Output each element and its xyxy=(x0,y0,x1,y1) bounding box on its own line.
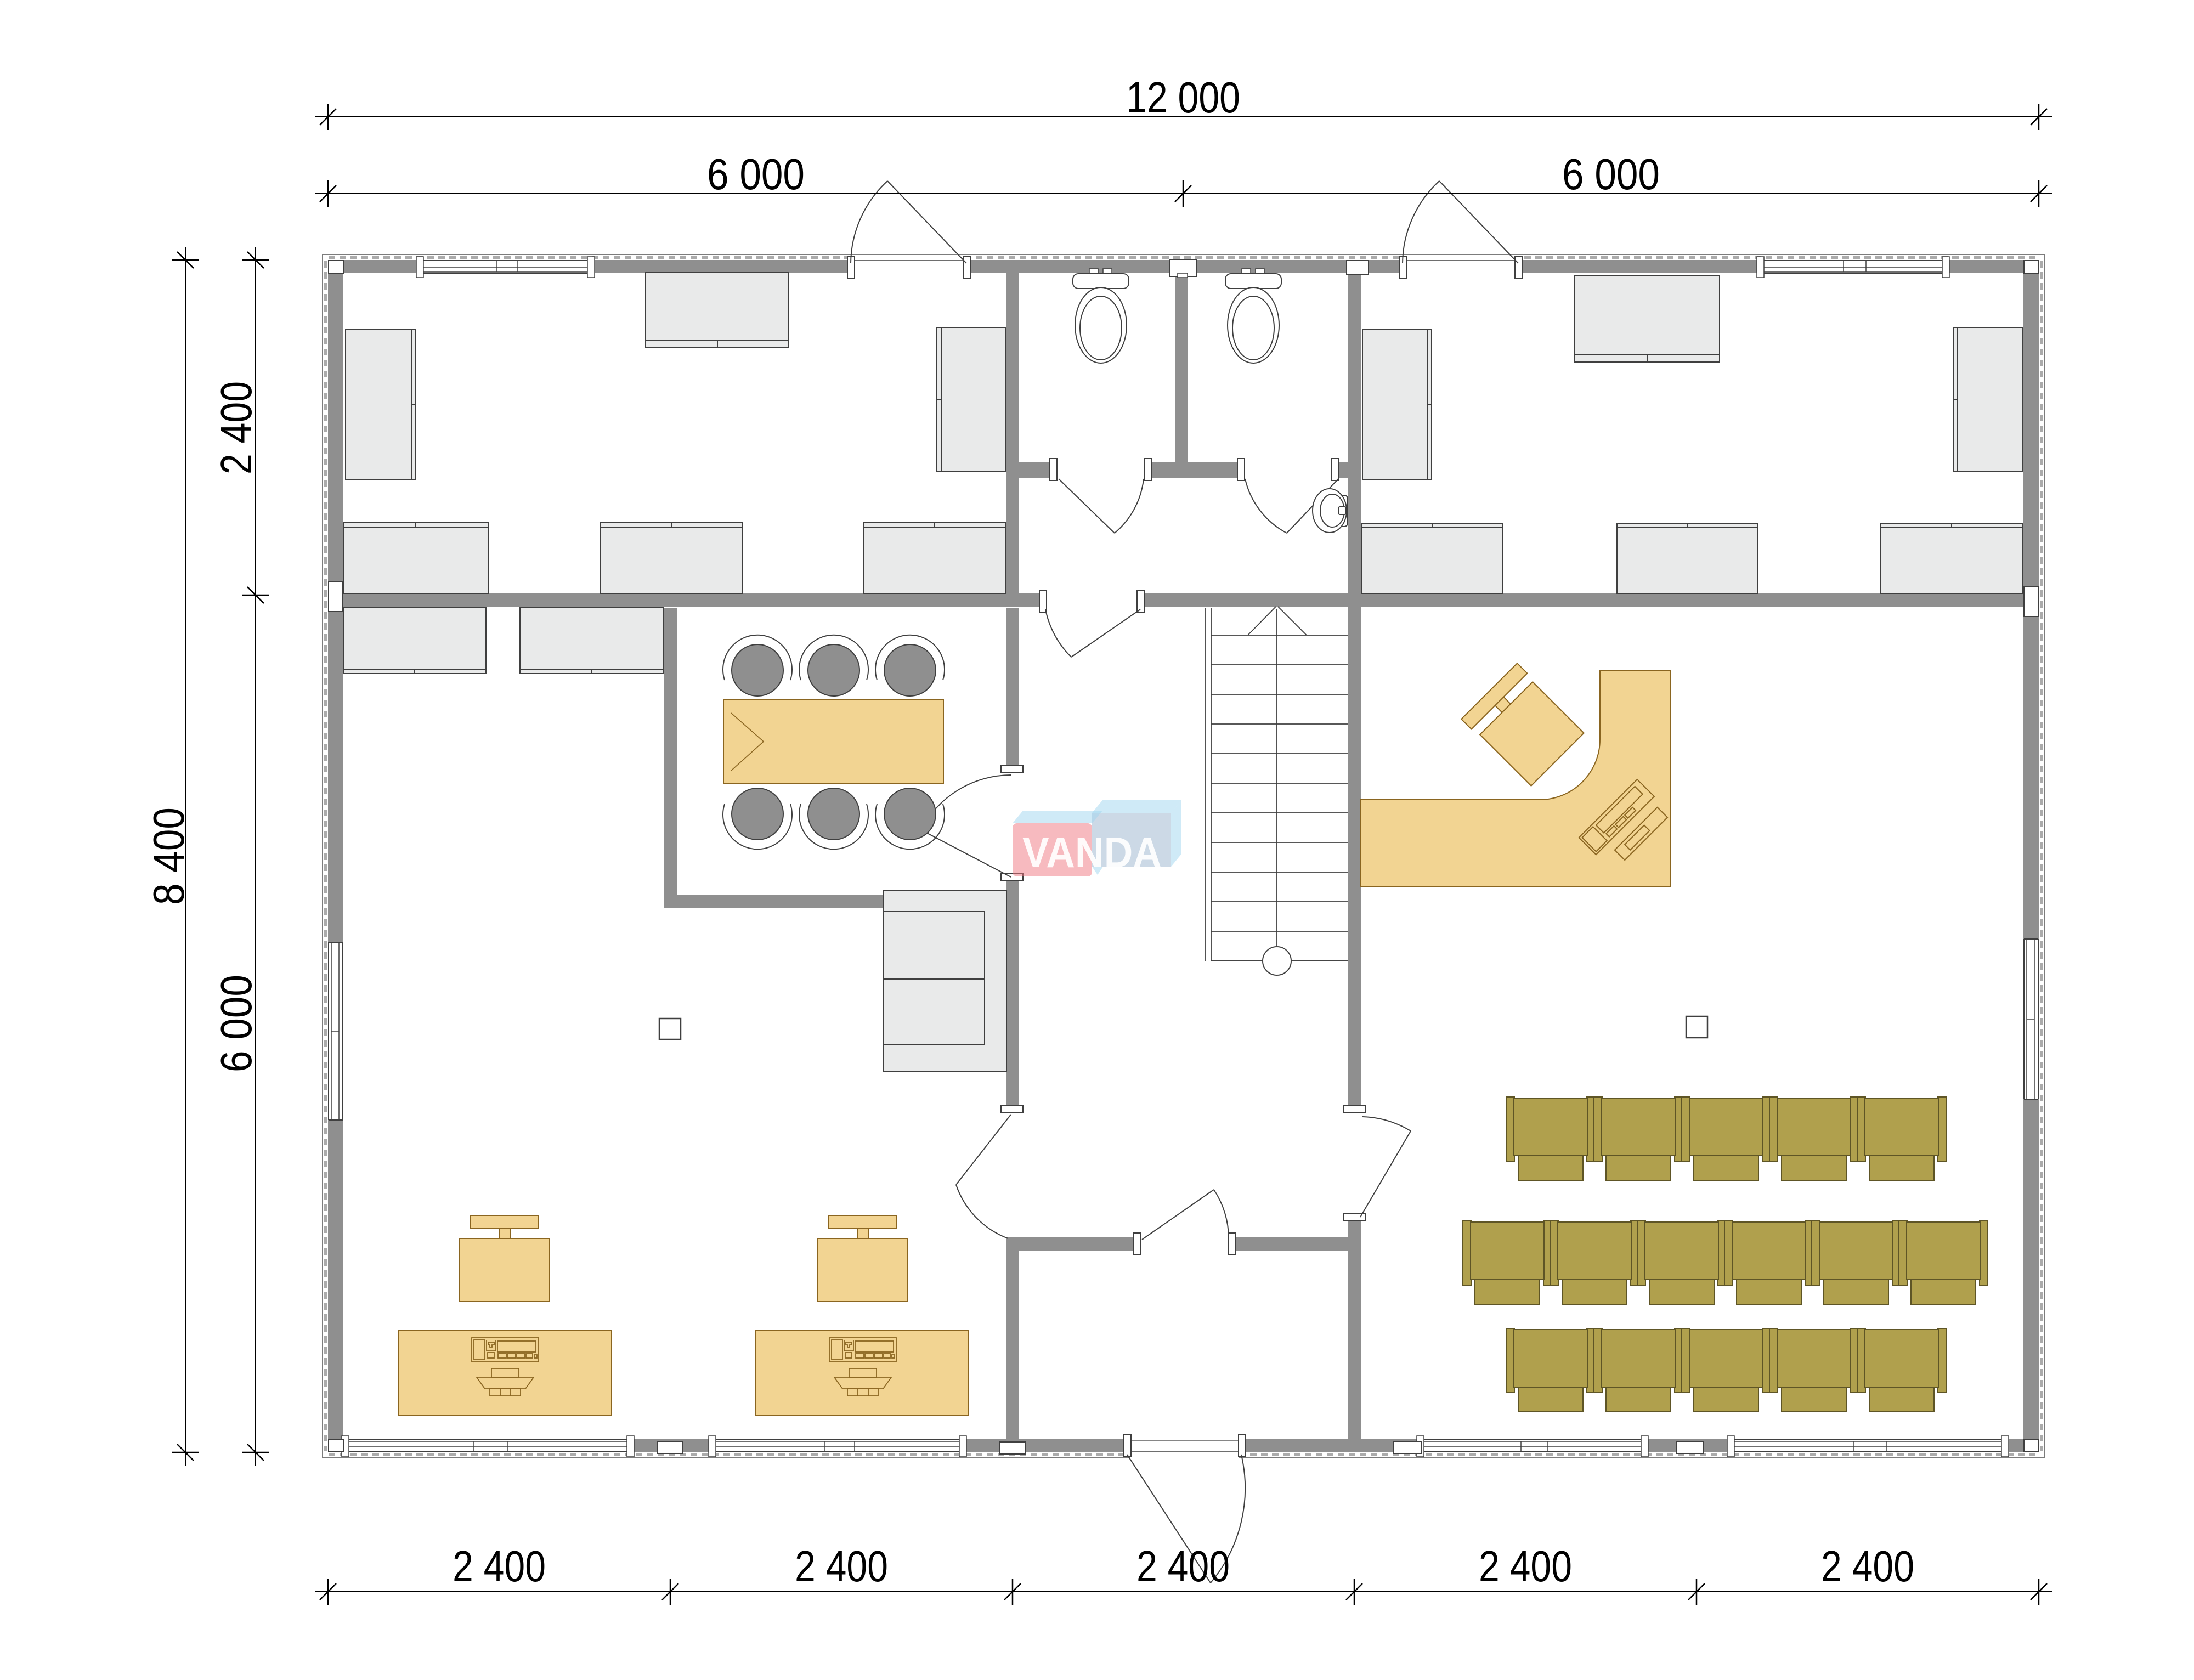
svg-text:6 000: 6 000 xyxy=(1562,150,1660,199)
svg-text:8 400: 8 400 xyxy=(144,807,193,905)
svg-text:2 400: 2 400 xyxy=(1479,1542,1572,1591)
svg-text:2 400: 2 400 xyxy=(1821,1542,1914,1591)
svg-text:12 000: 12 000 xyxy=(1126,73,1240,122)
svg-text:6 000: 6 000 xyxy=(707,150,805,199)
svg-text:VANDA: VANDA xyxy=(1022,828,1162,876)
svg-text:2 400: 2 400 xyxy=(212,381,261,474)
svg-text:6 000: 6 000 xyxy=(212,975,261,1072)
svg-text:2 400: 2 400 xyxy=(453,1542,546,1591)
svg-text:2 400: 2 400 xyxy=(795,1542,888,1591)
svg-text:2 400: 2 400 xyxy=(1136,1542,1230,1591)
